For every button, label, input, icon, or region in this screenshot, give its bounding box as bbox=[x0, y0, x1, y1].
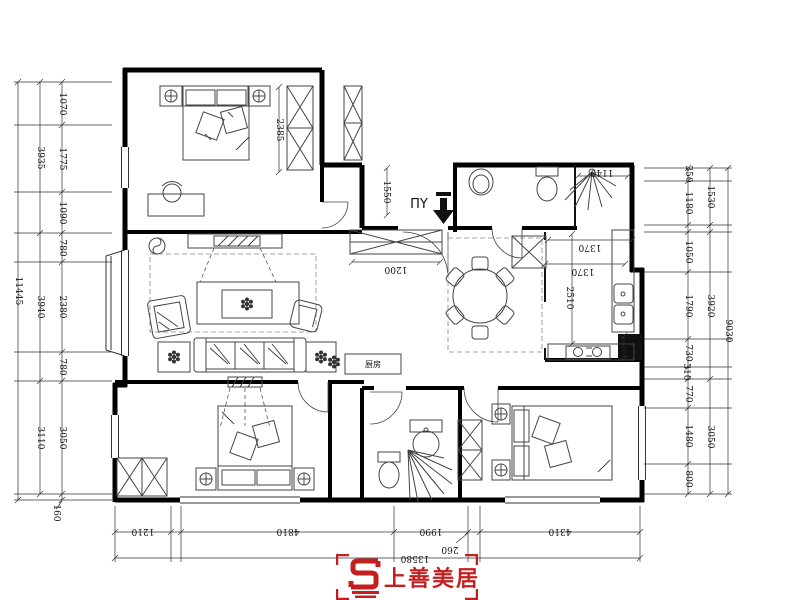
dimension-label: 260 bbox=[441, 544, 458, 554]
dimension-label: 730 bbox=[683, 344, 693, 361]
floorplan: 1070177510907802380780305016039353940311… bbox=[0, 0, 800, 600]
dimension-label: 1370 bbox=[578, 242, 601, 252]
bathroom-bottom-fixtures bbox=[378, 420, 482, 502]
dimension-label: 780 bbox=[57, 239, 67, 256]
brand-logo: 上善美居 bbox=[336, 554, 478, 600]
dimension-label: 3935 bbox=[35, 147, 45, 170]
dimension-label: 1480 bbox=[683, 425, 693, 448]
dimension-label: 1200 bbox=[384, 264, 407, 274]
dimension-label: 1790 bbox=[683, 295, 693, 318]
dimension-label: 1210 bbox=[131, 526, 154, 536]
dimension-label: 3110 bbox=[35, 427, 45, 450]
dimension-label: 3050 bbox=[705, 426, 715, 449]
dimension-label: 2380 bbox=[57, 296, 67, 319]
dimension-label: 770 bbox=[683, 385, 693, 402]
floor-plan-canvas: 1070177510907802380780305016039353940311… bbox=[0, 0, 800, 600]
dimension-label: 3920 bbox=[705, 295, 715, 318]
dimension-label: 2510 bbox=[564, 287, 574, 310]
dimension-label: 9030 bbox=[723, 320, 733, 343]
dimension-label: 3050 bbox=[57, 427, 67, 450]
dimension-label: 1530 bbox=[705, 186, 715, 209]
entry-label: ΠY bbox=[410, 197, 428, 212]
dimension-label: 2385 bbox=[274, 119, 284, 142]
dimension-label: 11445 bbox=[13, 277, 23, 306]
dimension-label: 1070 bbox=[57, 93, 67, 116]
logo-s-icon bbox=[351, 561, 379, 598]
dimension-label: 4310 bbox=[548, 526, 571, 536]
dimension-label: 800 bbox=[683, 470, 693, 487]
dimension-label: 780 bbox=[57, 358, 67, 375]
dimension-label: 310 bbox=[681, 363, 691, 380]
dining-furniture bbox=[445, 238, 542, 352]
dimension-label: 1140 bbox=[590, 167, 613, 177]
kitchen-box-label: 厨房 bbox=[365, 359, 381, 369]
dimension-label: 350 bbox=[683, 165, 693, 182]
dimension-label: 3940 bbox=[35, 296, 45, 319]
dimension-label: 1180 bbox=[683, 192, 693, 215]
walls bbox=[113, 68, 644, 502]
bedroom3-furniture bbox=[492, 404, 612, 480]
dimension-label: 1050 bbox=[683, 241, 693, 264]
dimension-label: 1550 bbox=[381, 181, 391, 204]
shaft-column bbox=[344, 86, 362, 160]
living-room-furniture bbox=[147, 234, 401, 374]
dimension-label: 1775 bbox=[57, 148, 67, 171]
dimension-label: 1370 bbox=[571, 266, 594, 276]
brand-name: 上善美居 bbox=[384, 561, 480, 593]
dimension-label: 4810 bbox=[276, 526, 299, 536]
entry-area bbox=[350, 192, 454, 254]
dimension-label: 1990 bbox=[419, 526, 442, 536]
bedroom1-furniture bbox=[148, 86, 313, 216]
entry-arrow-icon bbox=[433, 192, 454, 224]
dimension-label: 730 bbox=[616, 337, 626, 354]
bedroom2-furniture bbox=[117, 377, 314, 496]
dimension-label: 1090 bbox=[57, 202, 67, 225]
windows bbox=[106, 147, 646, 503]
dimension-label: 160 bbox=[51, 504, 61, 521]
